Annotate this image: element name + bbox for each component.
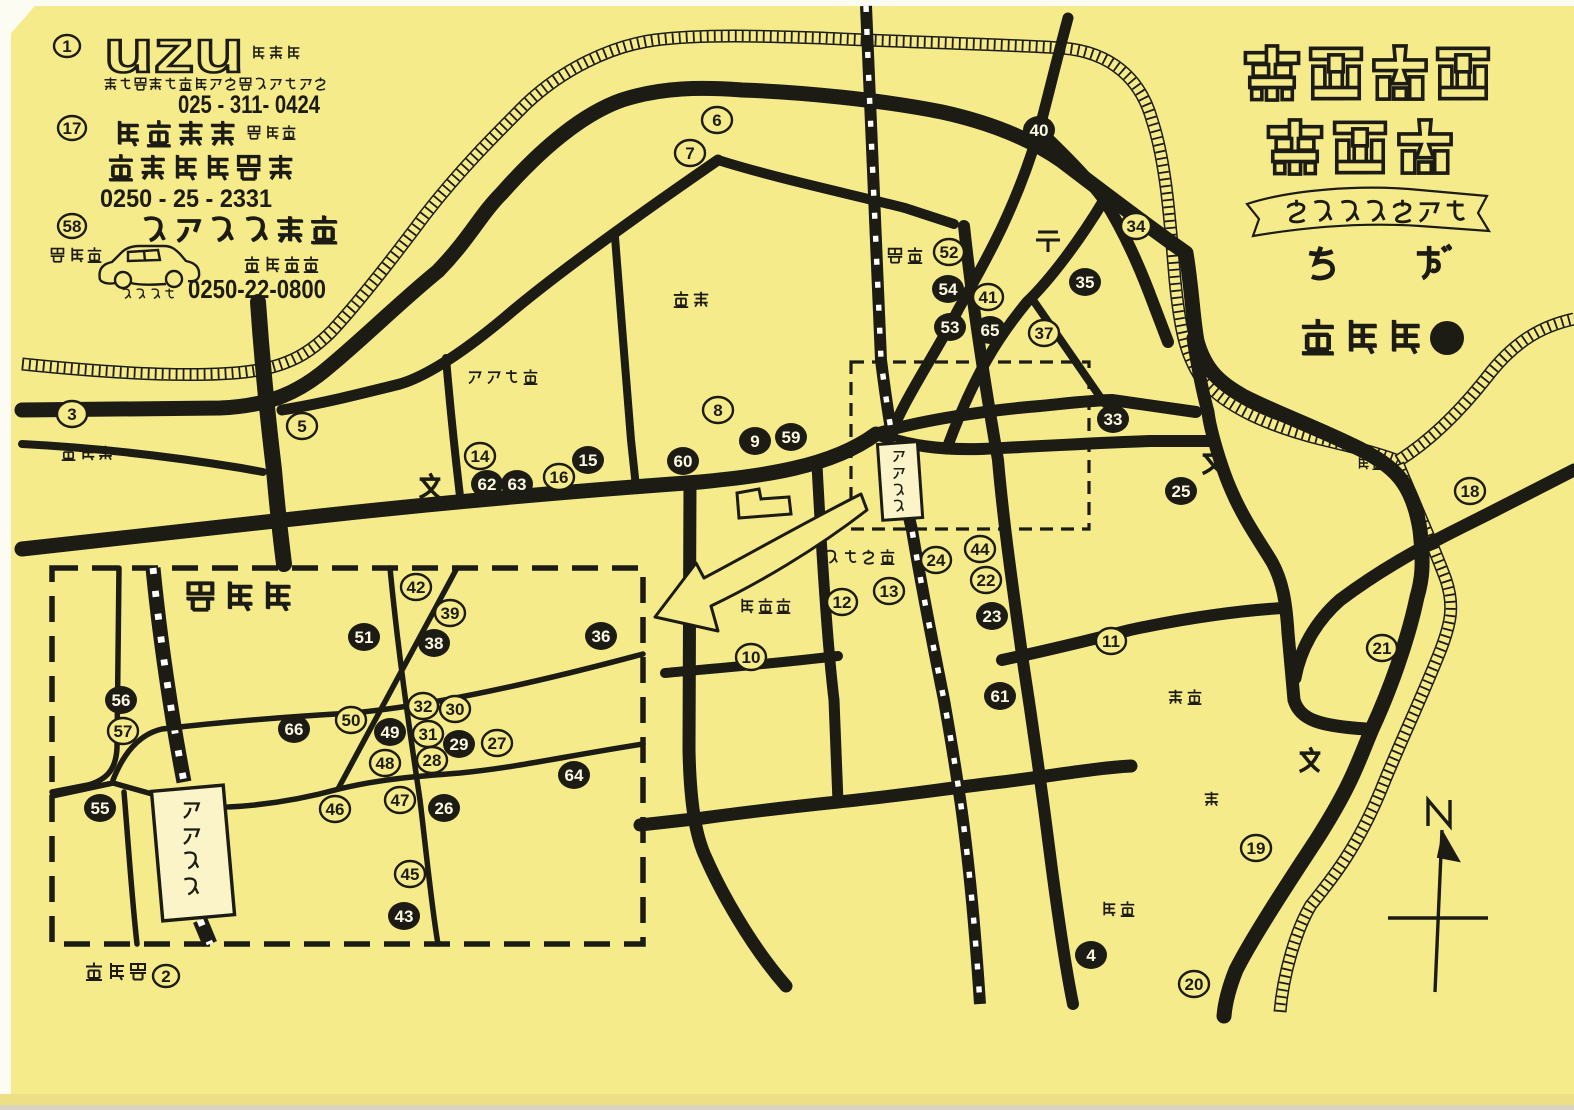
svg-text:50: 50 — [342, 711, 361, 730]
svg-text:6: 6 — [712, 111, 721, 130]
svg-text:25: 25 — [1172, 482, 1191, 501]
svg-text:29: 29 — [450, 735, 469, 754]
svg-text:57: 57 — [114, 722, 133, 741]
svg-text:11: 11 — [1102, 632, 1120, 651]
svg-text:42: 42 — [407, 578, 426, 597]
svg-text:58: 58 — [63, 217, 82, 236]
svg-text:30: 30 — [446, 700, 465, 719]
svg-text:23: 23 — [983, 607, 1002, 626]
svg-text:13: 13 — [880, 582, 899, 601]
svg-text:20: 20 — [1185, 975, 1204, 994]
svg-text:16: 16 — [550, 468, 569, 487]
svg-text:26: 26 — [435, 799, 454, 818]
svg-text:2: 2 — [161, 967, 170, 986]
svg-text:15: 15 — [579, 451, 598, 470]
svg-text:uzu: uzu — [104, 18, 244, 85]
svg-text:36: 36 — [592, 627, 611, 646]
svg-text:17: 17 — [63, 119, 82, 138]
svg-text:59: 59 — [782, 428, 801, 447]
svg-text:34: 34 — [1127, 217, 1146, 236]
svg-text:5: 5 — [297, 417, 306, 436]
svg-text:24: 24 — [927, 551, 946, 570]
svg-text:55: 55 — [91, 799, 110, 818]
svg-text:46: 46 — [326, 800, 345, 819]
svg-text:12: 12 — [833, 593, 852, 612]
svg-text:39: 39 — [441, 604, 460, 623]
svg-text:35: 35 — [1076, 273, 1095, 292]
svg-text:3: 3 — [67, 405, 76, 424]
svg-text:66: 66 — [285, 720, 304, 739]
svg-text:22: 22 — [977, 571, 996, 590]
svg-text:14: 14 — [471, 447, 490, 466]
svg-text:63: 63 — [508, 475, 527, 494]
svg-text:49: 49 — [381, 723, 400, 742]
svg-text:33: 33 — [1104, 410, 1123, 429]
svg-text:47: 47 — [391, 791, 410, 810]
svg-text:60: 60 — [674, 452, 693, 471]
svg-text:21: 21 — [1373, 639, 1392, 658]
svg-text:37: 37 — [1035, 324, 1054, 343]
svg-text:64: 64 — [565, 766, 584, 785]
svg-text:65: 65 — [981, 321, 1000, 340]
svg-text:0250 - 25 - 2331: 0250 - 25 - 2331 — [100, 185, 272, 213]
svg-text:38: 38 — [425, 634, 444, 653]
svg-text:1: 1 — [62, 37, 71, 56]
svg-text:31: 31 — [419, 725, 438, 744]
svg-text:45: 45 — [401, 865, 420, 884]
svg-text:18: 18 — [1461, 482, 1480, 501]
svg-text:025 - 311- 0424: 025 - 311- 0424 — [178, 91, 320, 119]
svg-text:43: 43 — [395, 907, 414, 926]
svg-text:51: 51 — [355, 628, 374, 647]
svg-text:61: 61 — [991, 687, 1010, 706]
svg-text:7: 7 — [685, 144, 694, 163]
svg-text:56: 56 — [112, 691, 131, 710]
svg-text:44: 44 — [971, 540, 990, 559]
svg-text:27: 27 — [488, 734, 507, 753]
svg-text:53: 53 — [941, 318, 960, 337]
svg-text:41: 41 — [979, 288, 998, 307]
svg-text:54: 54 — [939, 280, 958, 299]
svg-text:62: 62 — [478, 475, 497, 494]
svg-text:0250-22-0800: 0250-22-0800 — [188, 274, 326, 304]
svg-text:4: 4 — [1086, 946, 1096, 965]
svg-text:40: 40 — [1030, 121, 1049, 140]
svg-text:32: 32 — [414, 697, 433, 716]
svg-text:8: 8 — [713, 401, 722, 420]
svg-text:52: 52 — [940, 243, 959, 262]
svg-text:48: 48 — [376, 754, 395, 773]
svg-text:19: 19 — [1247, 839, 1266, 858]
svg-text:9: 9 — [750, 432, 759, 451]
svg-text:10: 10 — [742, 648, 761, 667]
svg-text:28: 28 — [423, 751, 442, 770]
